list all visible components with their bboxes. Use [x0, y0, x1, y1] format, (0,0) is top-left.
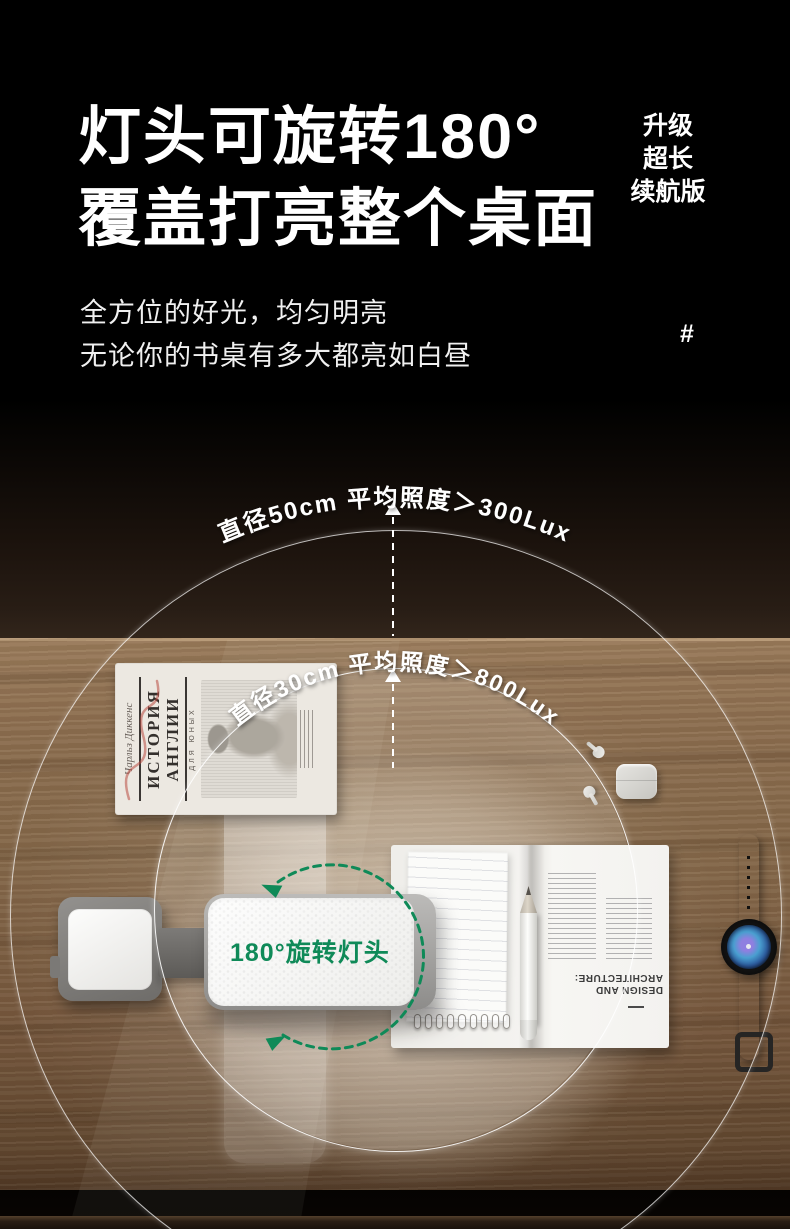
- coil-ring: [470, 1014, 477, 1029]
- dark-wall-background: [0, 398, 790, 638]
- page-title: 灯头可旋转180° 覆盖打亮整个桌面: [78, 96, 598, 260]
- pencil-body: [520, 912, 537, 1024]
- magazine-history-of-england: Чарльз Диккенс ИСТОРИЯ АНГЛИИ ДЛЯ ЮНЫХ: [115, 663, 337, 815]
- smartwatch-screen-dot: [746, 944, 751, 949]
- lamp-base-pad: [68, 909, 152, 990]
- pencil-end-cap: [520, 1020, 537, 1040]
- upgrade-badge-line3: 续航版: [596, 176, 740, 209]
- magazine-fine-print: [300, 710, 316, 768]
- page-title-line1: 灯头可旋转180°: [78, 96, 598, 178]
- subtitle-line2: 无论你的书桌有多大都亮如白昼: [80, 335, 472, 378]
- magazine-engraving-illustration: [201, 680, 297, 798]
- subtitle: 全方位的好光，均匀明亮 无论你的书桌有多大都亮如白昼: [80, 292, 472, 378]
- coil-ring: [492, 1014, 499, 1029]
- coil-ring: [481, 1014, 488, 1029]
- earbuds-case: [616, 764, 657, 799]
- desk-front-shadow: [0, 1150, 790, 1216]
- upgrade-badge-line1: 升级: [596, 110, 740, 143]
- inner-arrow-dashed-line: [392, 684, 394, 768]
- book-heading-line2: ARCHITECTURE:: [583, 971, 663, 983]
- page-title-line2: 覆盖打亮整个桌面: [78, 178, 598, 260]
- book-heading-rule: [628, 1006, 644, 1008]
- rotation-label: 180°旋转灯头: [230, 933, 410, 969]
- red-script-ornament: [121, 663, 181, 813]
- coil-ring: [503, 1014, 510, 1029]
- book-toc-block: [606, 898, 652, 960]
- lamp-base-switch: [50, 956, 60, 978]
- smartwatch-buckle: [735, 1032, 773, 1072]
- product-promo-page: 灯头可旋转180° 覆盖打亮整个桌面 升级 超长 续航版 全方位的好光，均匀明亮…: [0, 0, 790, 1229]
- smartwatch-strap-holes: [747, 856, 750, 916]
- hash-mark: #: [680, 320, 694, 349]
- inner-arrow-up-icon: [385, 669, 401, 682]
- desk-front-edge: [0, 1216, 790, 1229]
- upgrade-badge: 升级 超长 续航版: [596, 110, 740, 209]
- outer-arrow-dashed-line: [392, 517, 394, 636]
- subtitle-line1: 全方位的好光，均匀明亮: [80, 292, 472, 335]
- book-paragraph-block: [548, 873, 596, 959]
- coil-ring: [458, 1014, 465, 1029]
- book-heading-line1: DESIGN AND: [583, 983, 663, 995]
- upgrade-badge-line2: 超长: [596, 143, 740, 176]
- outer-arrow-up-icon: [385, 502, 401, 515]
- magazine-caption: ДЛЯ ЮНЫХ: [189, 663, 196, 815]
- book-heading-upside-down: DESIGN AND ARCHITECTURE:: [583, 971, 663, 995]
- magazine-cover: Чарльз Диккенс ИСТОРИЯ АНГЛИИ ДЛЯ ЮНЫХ: [115, 663, 337, 815]
